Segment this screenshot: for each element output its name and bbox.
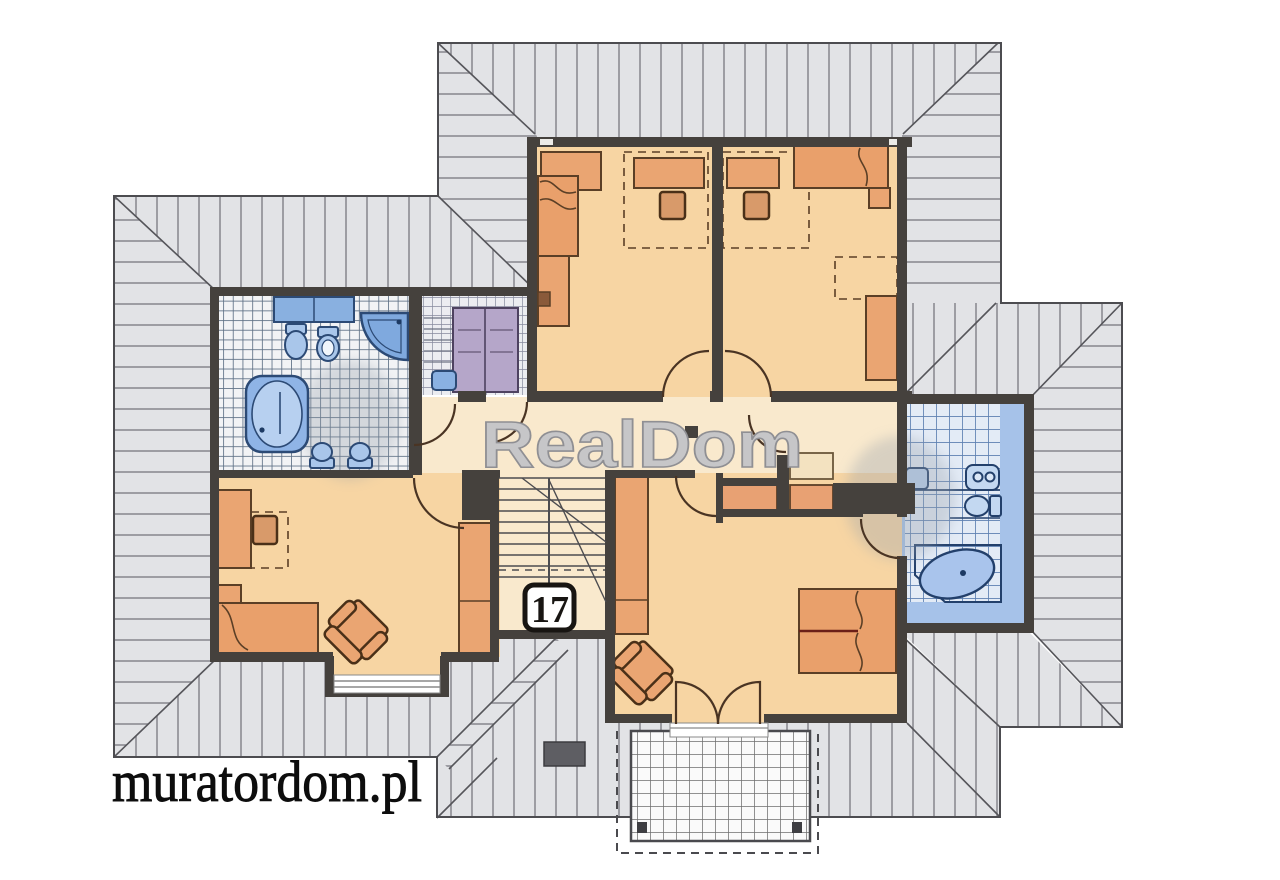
svg-text:17: 17 [531, 589, 569, 631]
svg-text:muratordom.pl: muratordom.pl [112, 749, 422, 814]
svg-text:RealDom: RealDom [481, 407, 803, 481]
